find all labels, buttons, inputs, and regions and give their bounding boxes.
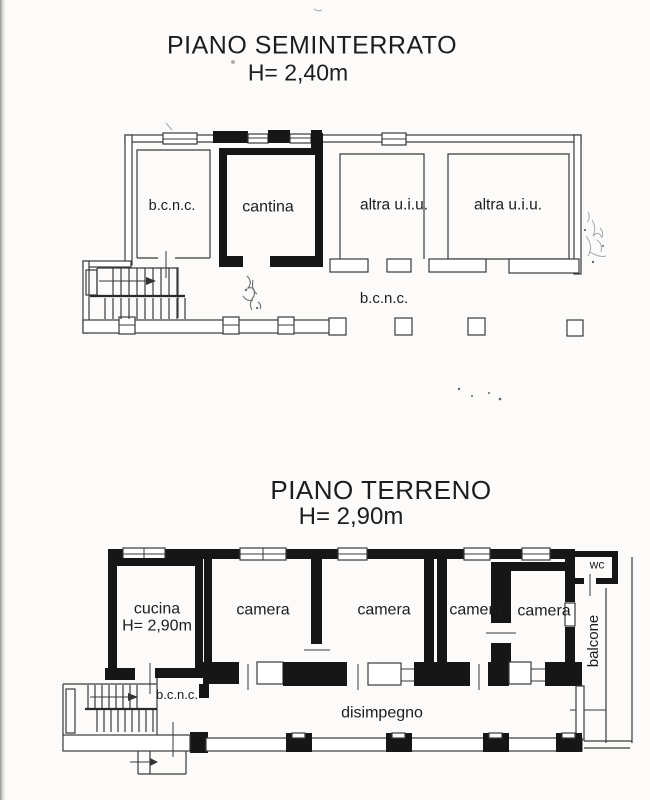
room-label-camera-1: camera (236, 601, 289, 618)
room-label-camera-3: camera (449, 601, 502, 618)
room-label-camera-2: camera (357, 601, 410, 618)
room-label-balcone: balcone (586, 615, 602, 668)
scanned-floorplan-page: PIANO SEMINTERRATO H= 2,40m b.c.n.c. can… (0, 0, 650, 800)
seminterrato-outer-walls (83, 135, 581, 333)
room-label-altra-uiu-1: altra u.i.u. (360, 198, 428, 215)
floorplan-drawing (0, 0, 650, 800)
terreno-bottom-wall (190, 732, 582, 753)
terreno-plan (63, 548, 632, 774)
room-label-altra-uiu-2: altra u.i.u. (474, 198, 542, 215)
room-label-camera-4: camera (517, 602, 570, 619)
terreno-corridor-band (199, 662, 584, 740)
cucina-height: H= 2,90m (122, 618, 192, 635)
room-label-wc: wc (590, 559, 605, 572)
room-label-cantina: cantina (242, 198, 294, 215)
room-label-bcnc-landing: b.c.n.c. (156, 688, 198, 702)
room-label-bcnc-corridor: b.c.n.c. (360, 291, 408, 307)
seminterrato-stairs (86, 268, 185, 319)
seminterrato-plan (83, 130, 583, 336)
cucina-name: cucina (122, 601, 192, 618)
floor-title-terreno: PIANO TERRENO (270, 476, 491, 504)
room-label-cucina: cucina H= 2,90m (122, 601, 192, 636)
seminterrato-pillars (329, 318, 583, 336)
room-label-bcnc-room: b.c.n.c. (149, 199, 196, 215)
floor-title-seminterrato: PIANO SEMINTERRATO (167, 33, 457, 60)
floor-height-seminterrato: H= 2,40m (248, 61, 348, 86)
room-label-disimpegno: disimpegno (341, 704, 423, 721)
floor-height-terreno: H= 2,90m (299, 504, 404, 530)
